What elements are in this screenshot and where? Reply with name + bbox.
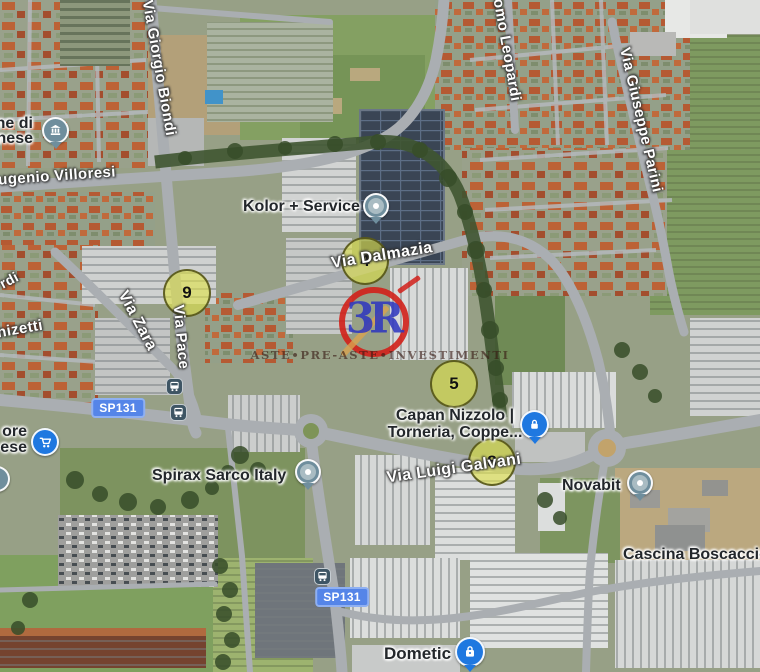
bus-stop-icon[interactable] xyxy=(166,378,183,395)
poi-label-capan-nizzolo[interactable]: Capan Nizzolo | Torneria, Coppe... xyxy=(385,407,525,441)
poi-label-novabit[interactable]: Novabit xyxy=(562,477,621,495)
bus-stop-icon[interactable] xyxy=(314,568,331,585)
comune-pin[interactable] xyxy=(42,117,69,144)
town-hall-icon xyxy=(44,119,67,142)
listing-marker-5[interactable]: 5 xyxy=(430,360,478,408)
spirax-sarco-pin[interactable] xyxy=(295,459,321,485)
road-badge-sp131: SP131 xyxy=(315,587,369,607)
road-badge-sp131: SP131 xyxy=(91,398,145,418)
shopping-cart-icon xyxy=(33,430,57,454)
generic-poi-icon xyxy=(305,469,311,475)
generic-poi-icon xyxy=(637,480,643,486)
poi-label-comune[interactable]: ne di nese xyxy=(0,116,33,146)
map-viewport[interactable]: 3R ASTE•PRE-ASTE•INVESTIMENTI 9 4 5 8 Vi… xyxy=(0,0,760,672)
bus-stop-icon[interactable] xyxy=(170,404,187,421)
supermarket-pin[interactable] xyxy=(31,428,59,456)
poi-label-cascina-boscaccio[interactable]: Cascina Boscaccio xyxy=(623,546,760,564)
poi-label-kolor-service[interactable]: Kolor + Service xyxy=(243,198,360,216)
dometic-pin[interactable] xyxy=(455,637,485,667)
shopping-bag-icon xyxy=(457,639,483,665)
poi-label-supermarket[interactable]: ore ese xyxy=(0,424,27,456)
partial-poi-icon[interactable] xyxy=(0,466,10,492)
poi-label-spirax-sarco[interactable]: Spirax Sarco Italy xyxy=(152,467,286,485)
poi-label-dometic[interactable]: Dometic xyxy=(384,644,451,664)
capan-nizzolo-pin[interactable] xyxy=(520,410,549,439)
satellite-imagery[interactable] xyxy=(0,0,760,672)
listing-marker-number: 9 xyxy=(182,283,191,303)
lock-icon xyxy=(522,412,547,437)
generic-poi-icon xyxy=(373,203,379,209)
kolor-service-pin[interactable] xyxy=(363,193,389,219)
listing-marker-number: 5 xyxy=(449,374,458,394)
novabit-pin[interactable] xyxy=(627,470,653,496)
